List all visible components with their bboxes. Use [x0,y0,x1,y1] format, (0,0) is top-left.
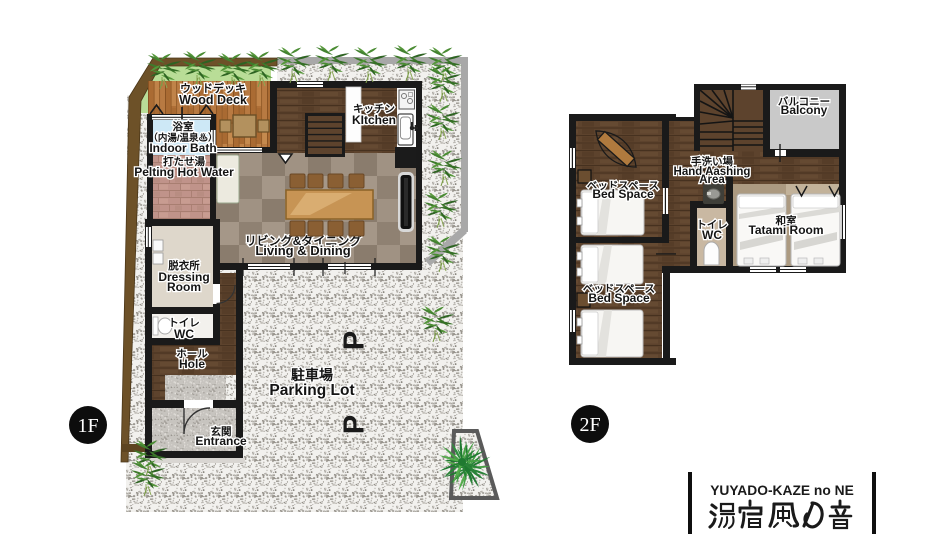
svg-text:Bed Space: Bed Space [588,291,650,305]
svg-text:駐車場: 駐車場 [291,367,333,383]
svg-text:Room: Room [167,280,201,294]
svg-text:WC: WC [702,228,722,242]
svg-text:Balcony: Balcony [781,103,828,117]
svg-text:YUYADO-KAZE no NE: YUYADO-KAZE no NE [710,483,854,498]
svg-text:Wood Deck: Wood Deck [179,93,247,107]
svg-text:Living & Dining: Living & Dining [255,243,350,258]
svg-text:Bed Space: Bed Space [592,187,654,201]
svg-text:Entrance: Entrance [195,434,247,448]
svg-text:Indoor Bath: Indoor Bath [149,141,216,155]
svg-text:WC: WC [174,327,194,341]
svg-text:P: P [339,415,371,434]
svg-text:2F: 2F [579,414,600,436]
svg-text:P: P [339,331,371,350]
svg-text:Pelting Hot Water: Pelting Hot Water [134,165,234,179]
svg-text:Hole: Hole [179,357,205,371]
svg-text:Tatami Room: Tatami Room [748,223,823,237]
svg-text:1F: 1F [77,415,98,437]
svg-text:Area: Area [699,174,725,186]
svg-text:Parking Lot: Parking Lot [269,382,354,399]
svg-text:浴室: 浴室 [173,120,194,133]
svg-text:KItchen: KItchen [352,113,396,127]
